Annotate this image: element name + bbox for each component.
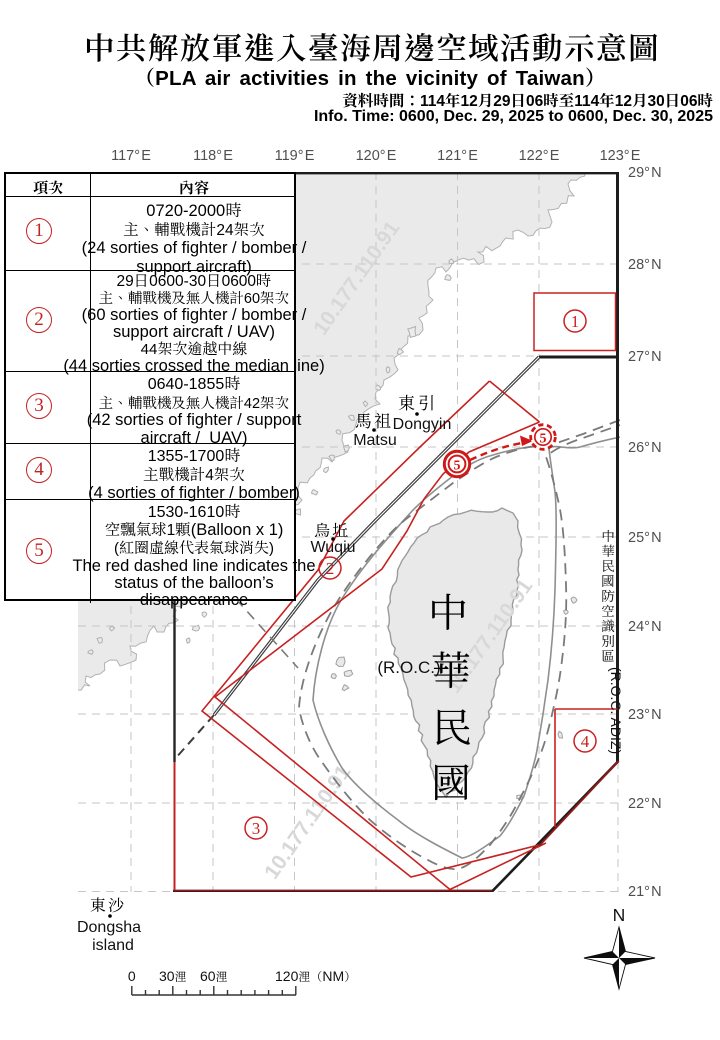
svg-text:4: 4 <box>581 732 590 751</box>
svg-text:0: 0 <box>128 968 136 984</box>
svg-text:28° N: 28° N <box>628 257 662 273</box>
svg-text:117° E: 117° E <box>111 148 151 164</box>
svg-text:5: 5 <box>454 459 461 474</box>
svg-text:119° E: 119° E <box>275 148 315 164</box>
svg-text:Dongyin: Dongyin <box>393 416 452 433</box>
svg-text:2: 2 <box>326 559 335 578</box>
svg-text:中: 中 <box>428 582 468 639</box>
svg-text:island: island <box>92 937 134 954</box>
svg-text:120° E: 120° E <box>356 148 397 164</box>
svg-text:(R.O.C. ADIZ): (R.O.C. ADIZ) <box>608 667 624 754</box>
svg-text:華: 華 <box>431 640 471 697</box>
svg-text:5: 5 <box>540 432 547 447</box>
svg-text:21° N: 21° N <box>628 884 662 900</box>
svg-text:Matsu: Matsu <box>353 432 397 449</box>
svg-text:Wuqiu: Wuqiu <box>310 539 355 556</box>
svg-text:29° N: 29° N <box>628 165 662 181</box>
svg-text:123° E: 123° E <box>600 148 641 164</box>
svg-text:東引: 東引 <box>398 389 438 414</box>
svg-text:60浬: 60浬 <box>200 968 228 985</box>
svg-text:東沙: 東沙 <box>90 893 126 916</box>
svg-text:122° E: 122° E <box>519 148 560 164</box>
svg-text:30浬: 30浬 <box>159 968 187 985</box>
svg-text:22° N: 22° N <box>628 796 662 812</box>
svg-text:區: 區 <box>601 645 615 665</box>
svg-text:120浬（NM）: 120浬（NM） <box>275 968 356 985</box>
svg-text:Dongsha: Dongsha <box>77 919 141 936</box>
svg-text:國: 國 <box>431 752 471 809</box>
svg-text:121° E: 121° E <box>437 148 478 164</box>
svg-text:民: 民 <box>432 697 472 754</box>
svg-text:23° N: 23° N <box>628 707 662 723</box>
svg-text:118° E: 118° E <box>193 148 233 164</box>
svg-text:26° N: 26° N <box>628 440 662 456</box>
svg-text:24° N: 24° N <box>628 619 662 635</box>
svg-text:3: 3 <box>252 819 261 838</box>
svg-text:1: 1 <box>571 312 580 331</box>
svg-text:25° N: 25° N <box>628 530 662 546</box>
svg-text:27° N: 27° N <box>628 349 662 365</box>
svg-text:N: N <box>613 905 626 925</box>
